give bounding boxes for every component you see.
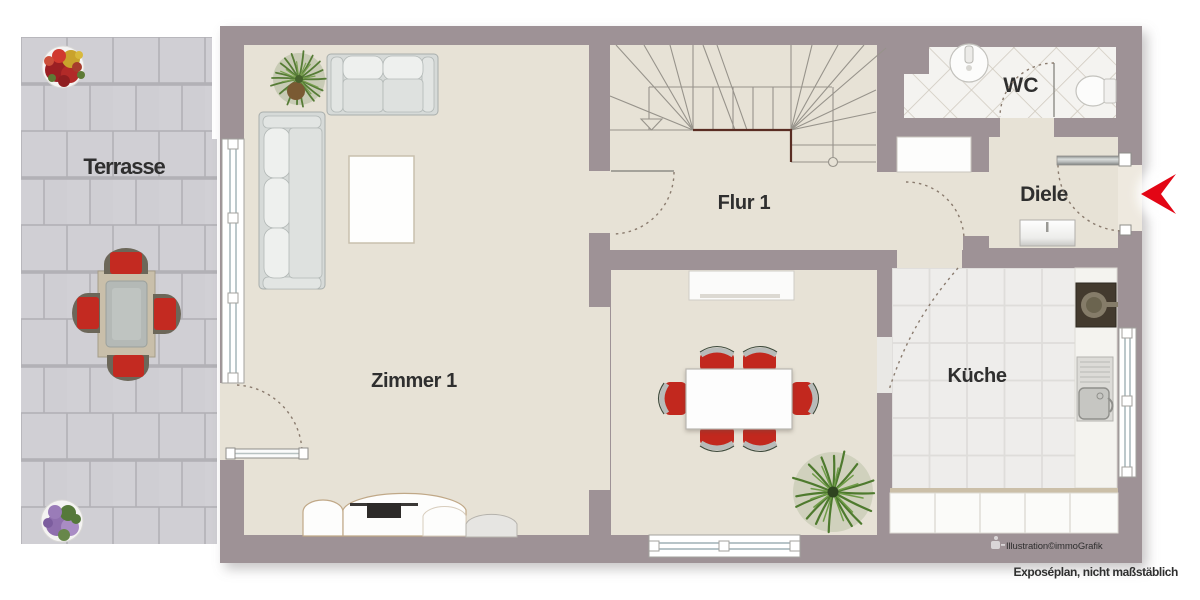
svg-text:Küche: Küche — [947, 365, 1006, 387]
svg-text:Illustration©immoGrafik: Illustration©immoGrafik — [1006, 541, 1103, 552]
svg-text:Diele: Diele — [1020, 183, 1068, 206]
svg-text:Flur 1: Flur 1 — [718, 192, 771, 214]
svg-text:WC: WC — [1003, 74, 1038, 97]
svg-text:Exposéplan, nicht maßstäblich: Exposéplan, nicht maßstäblich — [1014, 565, 1179, 579]
svg-text:Zimmer 1: Zimmer 1 — [371, 370, 457, 392]
svg-text:Terrasse: Terrasse — [83, 154, 165, 179]
